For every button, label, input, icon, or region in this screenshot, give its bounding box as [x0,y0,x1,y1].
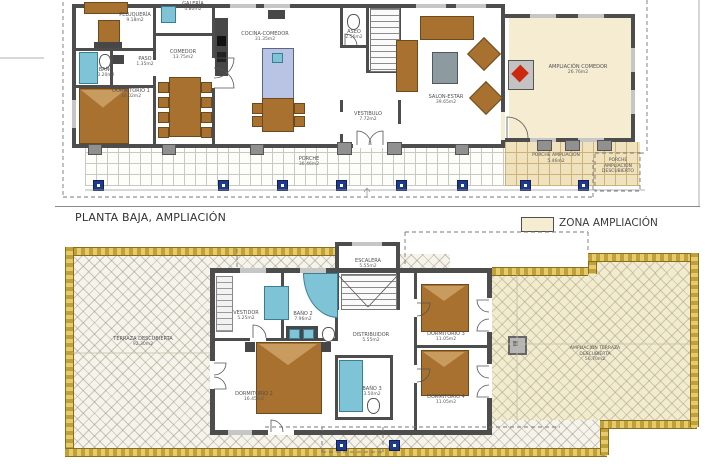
wall [340,45,368,48]
wall [210,338,338,341]
chair [252,103,263,114]
door-opening [353,144,387,148]
room-label-ampliacion-terraza: AMPLIACIÓN TERRAZA DESCUBIERTA 56.70m2 [558,346,632,363]
chair [294,116,305,127]
room-area: 3.50m2 [356,392,388,398]
nightstand [245,342,255,352]
wall [414,268,417,435]
window [264,4,290,8]
wall [156,33,214,36]
terrace-border [65,247,344,256]
staircase [341,274,397,310]
room-label-bano2: BAÑO 2 7.96m2 [288,311,318,323]
room-area: 1.35m2 [131,62,159,68]
pillar [387,142,402,155]
terrace-border [690,253,699,427]
room-area: 5.46m2 [530,159,582,165]
room-label-comedor: COMEDOR 13.75m2 [158,49,208,61]
window [631,90,635,114]
room-area: 26.76m2 [546,70,610,76]
pillar [565,140,580,151]
column-marker [578,180,589,191]
sofa [420,16,474,40]
sink [113,55,124,64]
room-label-paso: PASO 1.35m2 [131,56,159,68]
door-opening [268,430,294,435]
room-label-bano3: BAÑO 3 3.50m2 [356,386,388,398]
room-area: 11.05m2 [415,337,477,343]
pillar [597,140,612,151]
room-area: 36.46m2 [284,162,334,168]
wall [153,4,156,148]
room-label-terraza: TERRAZA DESCUBIERTA 92.30m2 [100,336,186,348]
tv-cabinet [432,52,458,84]
wall [340,4,343,48]
wall [72,144,505,148]
sofa [396,40,418,92]
wall [414,345,492,348]
column-marker [520,180,531,191]
room-label-peluqueria: PELUQUERÍA 9.18m2 [105,12,165,24]
window [240,268,266,273]
wall [487,268,492,435]
room-label-aseo: ASEO 2.56m2 [341,29,367,41]
room-area: 11.05m2 [415,400,477,406]
wall [505,14,635,18]
window [456,4,486,8]
floor-plan-sheet: PELUQUERÍA 9.18m2 GALERÍA 4.80m2 BAÑO 3.… [0,0,705,470]
room-area: 9.18m2 [105,18,165,24]
pillar [537,140,552,151]
pillar [88,144,102,155]
toilet [367,398,380,414]
room-area: 5.55m2 [348,264,388,270]
room-area: 39.65m2 [416,100,476,106]
closet-shelves [216,276,233,332]
window [578,14,604,18]
room-label-porche: PORCHE 36.46m2 [284,156,334,168]
room-area: 7.96m2 [288,317,318,323]
room-label-salon: SALON-ESTAR 39.65m2 [416,94,476,106]
room-area: 10.02m2 [101,94,161,100]
wall [631,14,635,142]
window [416,4,446,8]
column-marker [396,180,407,191]
room-label-vestidor: VESTIDOR 5.25m2 [221,310,271,322]
kitchen-sink [268,10,285,19]
column-marker [336,440,347,451]
room-area: 16.45m2 [223,397,285,403]
room-label-vestibulo: VESTIBULO 7.72m2 [343,111,393,123]
room-label-escalera: ESCALERA 5.55m2 [348,258,388,270]
chair [201,127,212,138]
wall [210,430,492,435]
door-opening [501,112,505,140]
wall [398,100,401,124]
pillar [250,144,264,155]
wall [76,48,156,51]
sink [289,329,300,339]
room-label-dormitorio1: DORMITORIO 1 10.02m2 [101,88,161,100]
column-marker [336,180,347,191]
column-marker [277,180,288,191]
door-opening [414,299,417,317]
room-label-galeria: GALERÍA 4.80m2 [173,1,213,13]
toilet [322,327,335,342]
room-label-porche-ampliacion-descubierto: PORCHE AMPLIACIÓN DESCUBIERTO [596,158,640,175]
kitchen-counter [215,18,228,76]
window [352,242,382,246]
room-area: 2.56m2 [341,35,367,41]
chair [201,97,212,108]
door-opening [250,338,266,341]
section-divider [55,206,700,207]
island-sink [272,53,283,63]
kitchen-table [262,98,294,132]
room-label-porche-ampliacion: PORCHE AMPLIACIÓN 5.46m2 [530,153,582,164]
column-marker [218,180,229,191]
column-marker [457,180,468,191]
door-opening [210,361,215,389]
terrace-border [492,267,588,276]
room-label-ampliacion-comedor: AMPLIACIÓN COMEDOR 26.76m2 [546,64,610,76]
chair [201,82,212,93]
legend-swatch [521,217,554,232]
sink [303,329,314,339]
wall [210,268,215,435]
pillar [337,142,352,155]
terrace-border [600,420,697,429]
chair [201,112,212,123]
room-label-dormitorio4: DORMITORIO 4 11.05m2 [415,394,477,406]
terrace-border [65,247,74,455]
room-label-distribuidor: DISTRIBUIDOR 5.55m2 [340,332,402,344]
window [228,430,252,435]
nightstand [321,342,331,352]
pillar [162,144,176,155]
chair [158,127,169,138]
wall [390,355,393,420]
room-area: 4.80m2 [173,7,213,13]
room-area: 56.70m2 [558,357,632,363]
room-area: 7.72m2 [343,117,393,123]
chair [294,103,305,114]
room-name: PORCHE AMPLIACIÓN DESCUBIERTO [596,158,640,175]
wall [335,355,338,420]
room-area: 31.35m2 [234,37,296,43]
oven [217,36,226,46]
room-label-cocina: COCINA-COMEDOR 31.35m2 [234,31,296,43]
door-opening [487,364,492,398]
room-area: 5.25m2 [221,316,271,322]
room-label-dormitorio2: DORMITORIO 2 16.45m2 [223,391,285,403]
wall [335,417,393,420]
room-area: 13.75m2 [158,55,208,61]
window [230,4,256,8]
room-label-bano: BAÑO 3.20m2 [92,67,120,79]
fridge [217,52,226,62]
column-marker [93,180,104,191]
terrace-border [588,253,690,262]
dining-table [169,77,201,137]
legend-label: ZONA AMPLIACIÓN [559,217,658,229]
desk [94,42,122,48]
door-opening [414,365,417,383]
window [72,100,76,128]
chair [158,112,169,123]
wall [335,355,393,358]
toilet [347,14,360,30]
window [631,48,635,72]
room-name: PORCHE AMPLIACIÓN [530,153,582,159]
room-label-dormitorio3: DORMITORIO 3 11.05m2 [415,331,477,343]
room-area: 92.30m2 [100,342,186,348]
room-area: 5.55m2 [340,338,402,344]
pillar [455,144,469,155]
room-name: AMPLIACIÓN TERRAZA DESCUBIERTA [558,346,632,357]
extension-tint [588,260,690,274]
column-marker [389,440,400,451]
door-opening [487,298,492,332]
chair [252,116,263,127]
window [530,14,556,18]
room-area: 3.20m2 [92,73,120,79]
plan-title: PLANTA BAJA, AMPLIACIÓN [75,211,226,224]
column-marker [508,336,527,355]
